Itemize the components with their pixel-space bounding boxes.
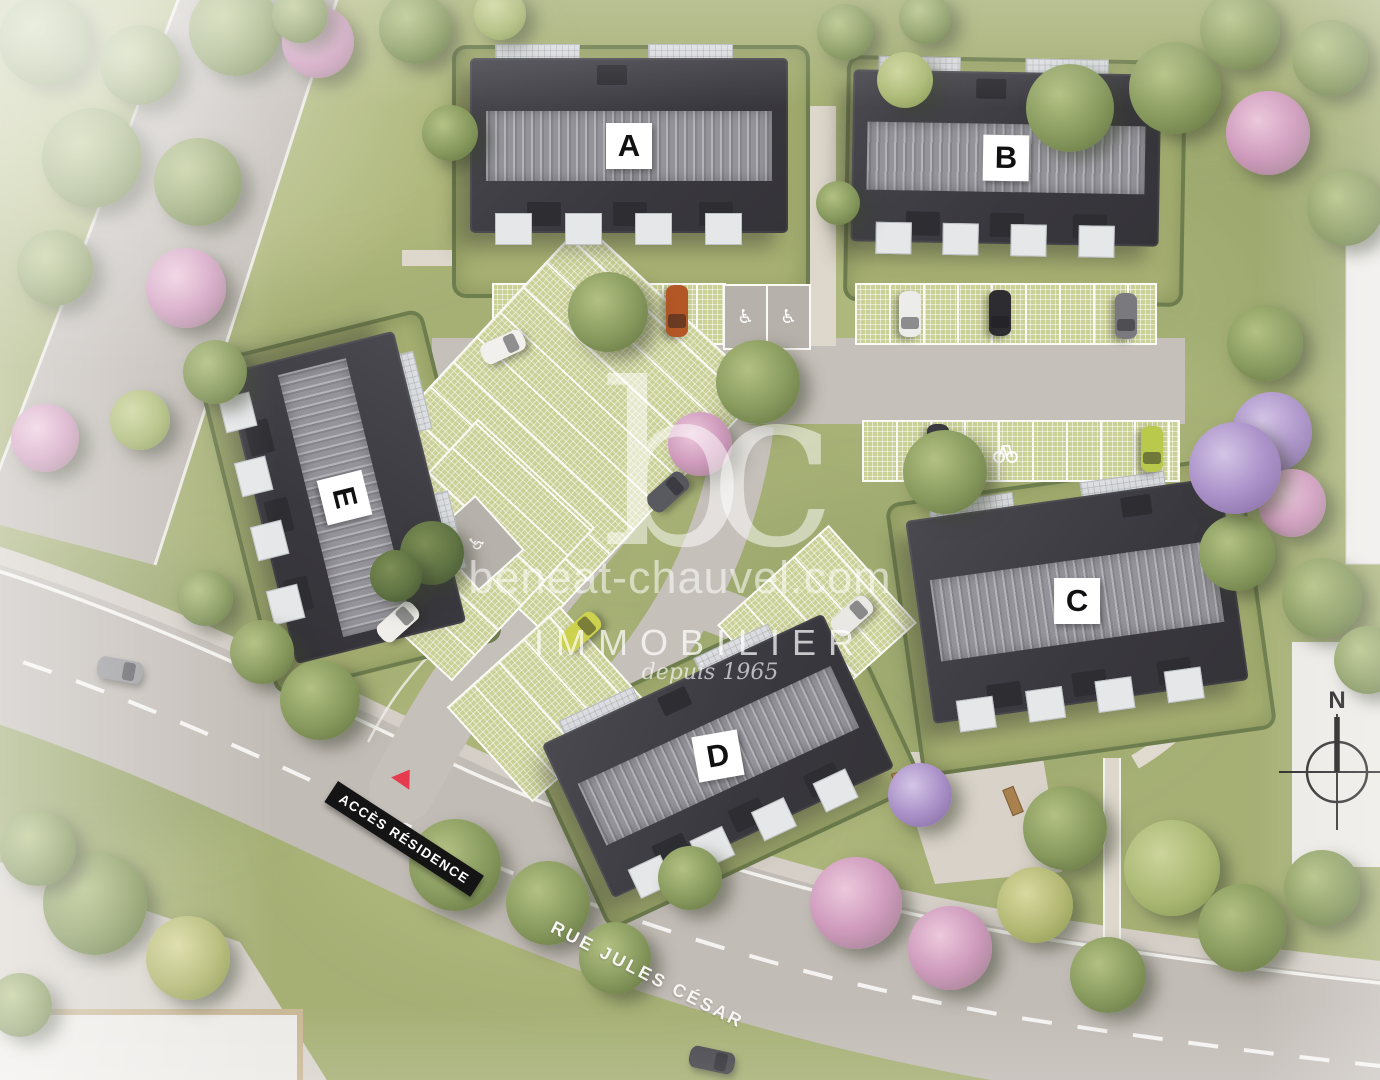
site-plan: ♿♿♿ A: [0, 0, 1380, 1080]
haze-overlay: [0, 0, 1380, 1080]
